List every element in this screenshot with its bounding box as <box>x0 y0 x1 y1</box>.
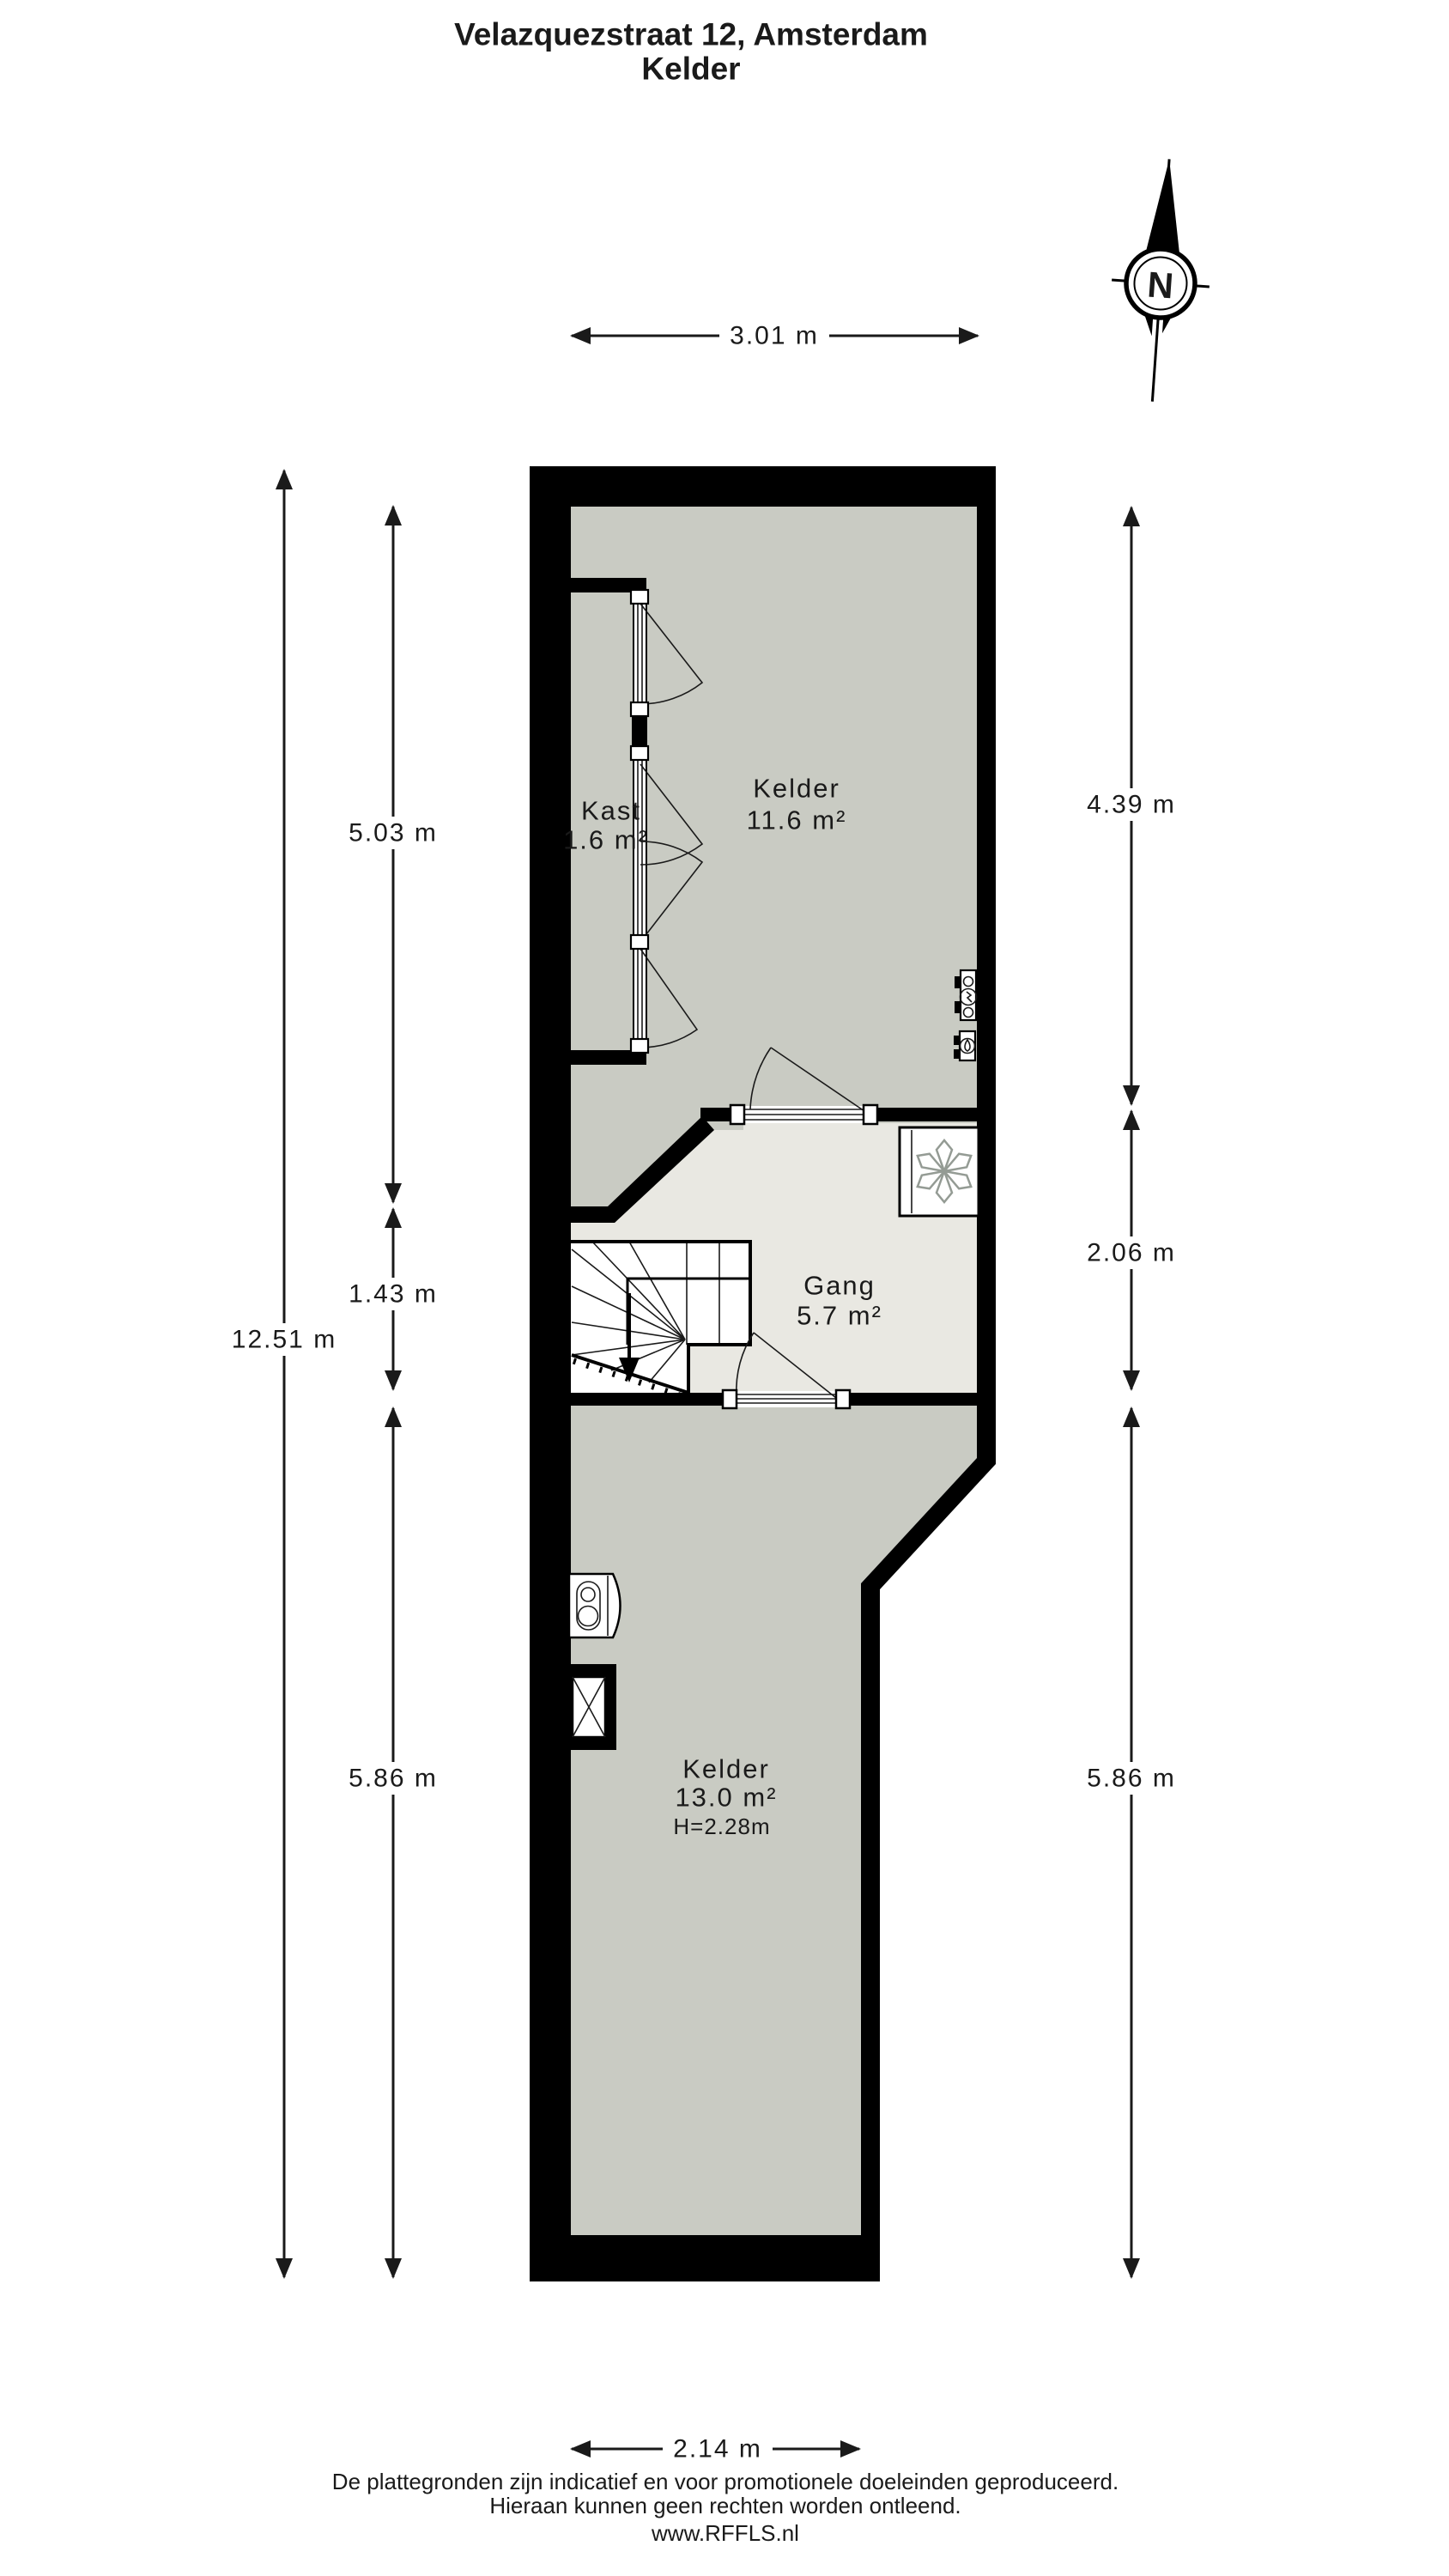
footer-disclaimer-2: Hieraan kunnen geen rechten worden ontle… <box>489 2493 961 2518</box>
dim-left-bottom: 5.86 m <box>349 1765 438 1793</box>
dim-right-mid: 2.06 m <box>1087 1239 1176 1267</box>
dim-left-top: 5.03 m <box>349 819 438 848</box>
room-area-kelder-bottom: 13.0 m² <box>675 1783 777 1813</box>
dim-top: 3.01 m <box>730 322 819 350</box>
compass-n-label: N <box>1146 264 1175 306</box>
title-address: Velazquezstraat 12, Amsterdam <box>454 17 928 52</box>
dim-right-top: 4.39 m <box>1087 791 1176 819</box>
north-compass-icon: N <box>1104 155 1218 404</box>
footer-disclaimer-1: De plattegronden zijn indicatief en voor… <box>332 2469 1119 2494</box>
dim-bottom: 2.14 m <box>673 2435 762 2464</box>
room-name-kelder-bottom: Kelder <box>682 1754 770 1784</box>
track-post <box>632 716 647 746</box>
dim-left-mid: 1.43 m <box>349 1280 438 1309</box>
dim-left-total: 12.51 m <box>232 1326 336 1354</box>
boiler-icon <box>569 1574 621 1637</box>
floorplan-page: Velazquezstraat 12, Amsterdam Kelder N <box>0 0 1449 2576</box>
title-floor: Kelder <box>641 52 740 87</box>
dim-right-bottom: 5.86 m <box>1087 1765 1176 1793</box>
room-area-gang: 5.7 m² <box>797 1301 882 1331</box>
room-area-kelder-top: 11.6 m² <box>747 805 847 835</box>
floorplan-svg: Velazquezstraat 12, Amsterdam Kelder N <box>0 0 1449 2576</box>
ventilation-unit <box>900 1127 979 1216</box>
footer: De plattegronden zijn indicatief en voor… <box>332 2469 1119 2546</box>
page-title: Velazquezstraat 12, Amsterdam Kelder <box>454 17 928 87</box>
shaft-icon <box>567 1664 616 1750</box>
room-area-kast: 1.6 m² <box>563 825 649 855</box>
room-height-kelder-bottom: H=2.28m <box>673 1814 770 1839</box>
room-name-kelder-top: Kelder <box>753 774 840 804</box>
gang-topwall-right <box>865 1108 996 1121</box>
gang-bottomwall-left <box>530 1393 724 1406</box>
gang-bottomwall-right <box>850 1393 996 1406</box>
room-name-gang: Gang <box>803 1271 876 1301</box>
footer-website: www.RFFLS.nl <box>651 2520 799 2546</box>
room-name-kast: Kast <box>581 796 641 826</box>
